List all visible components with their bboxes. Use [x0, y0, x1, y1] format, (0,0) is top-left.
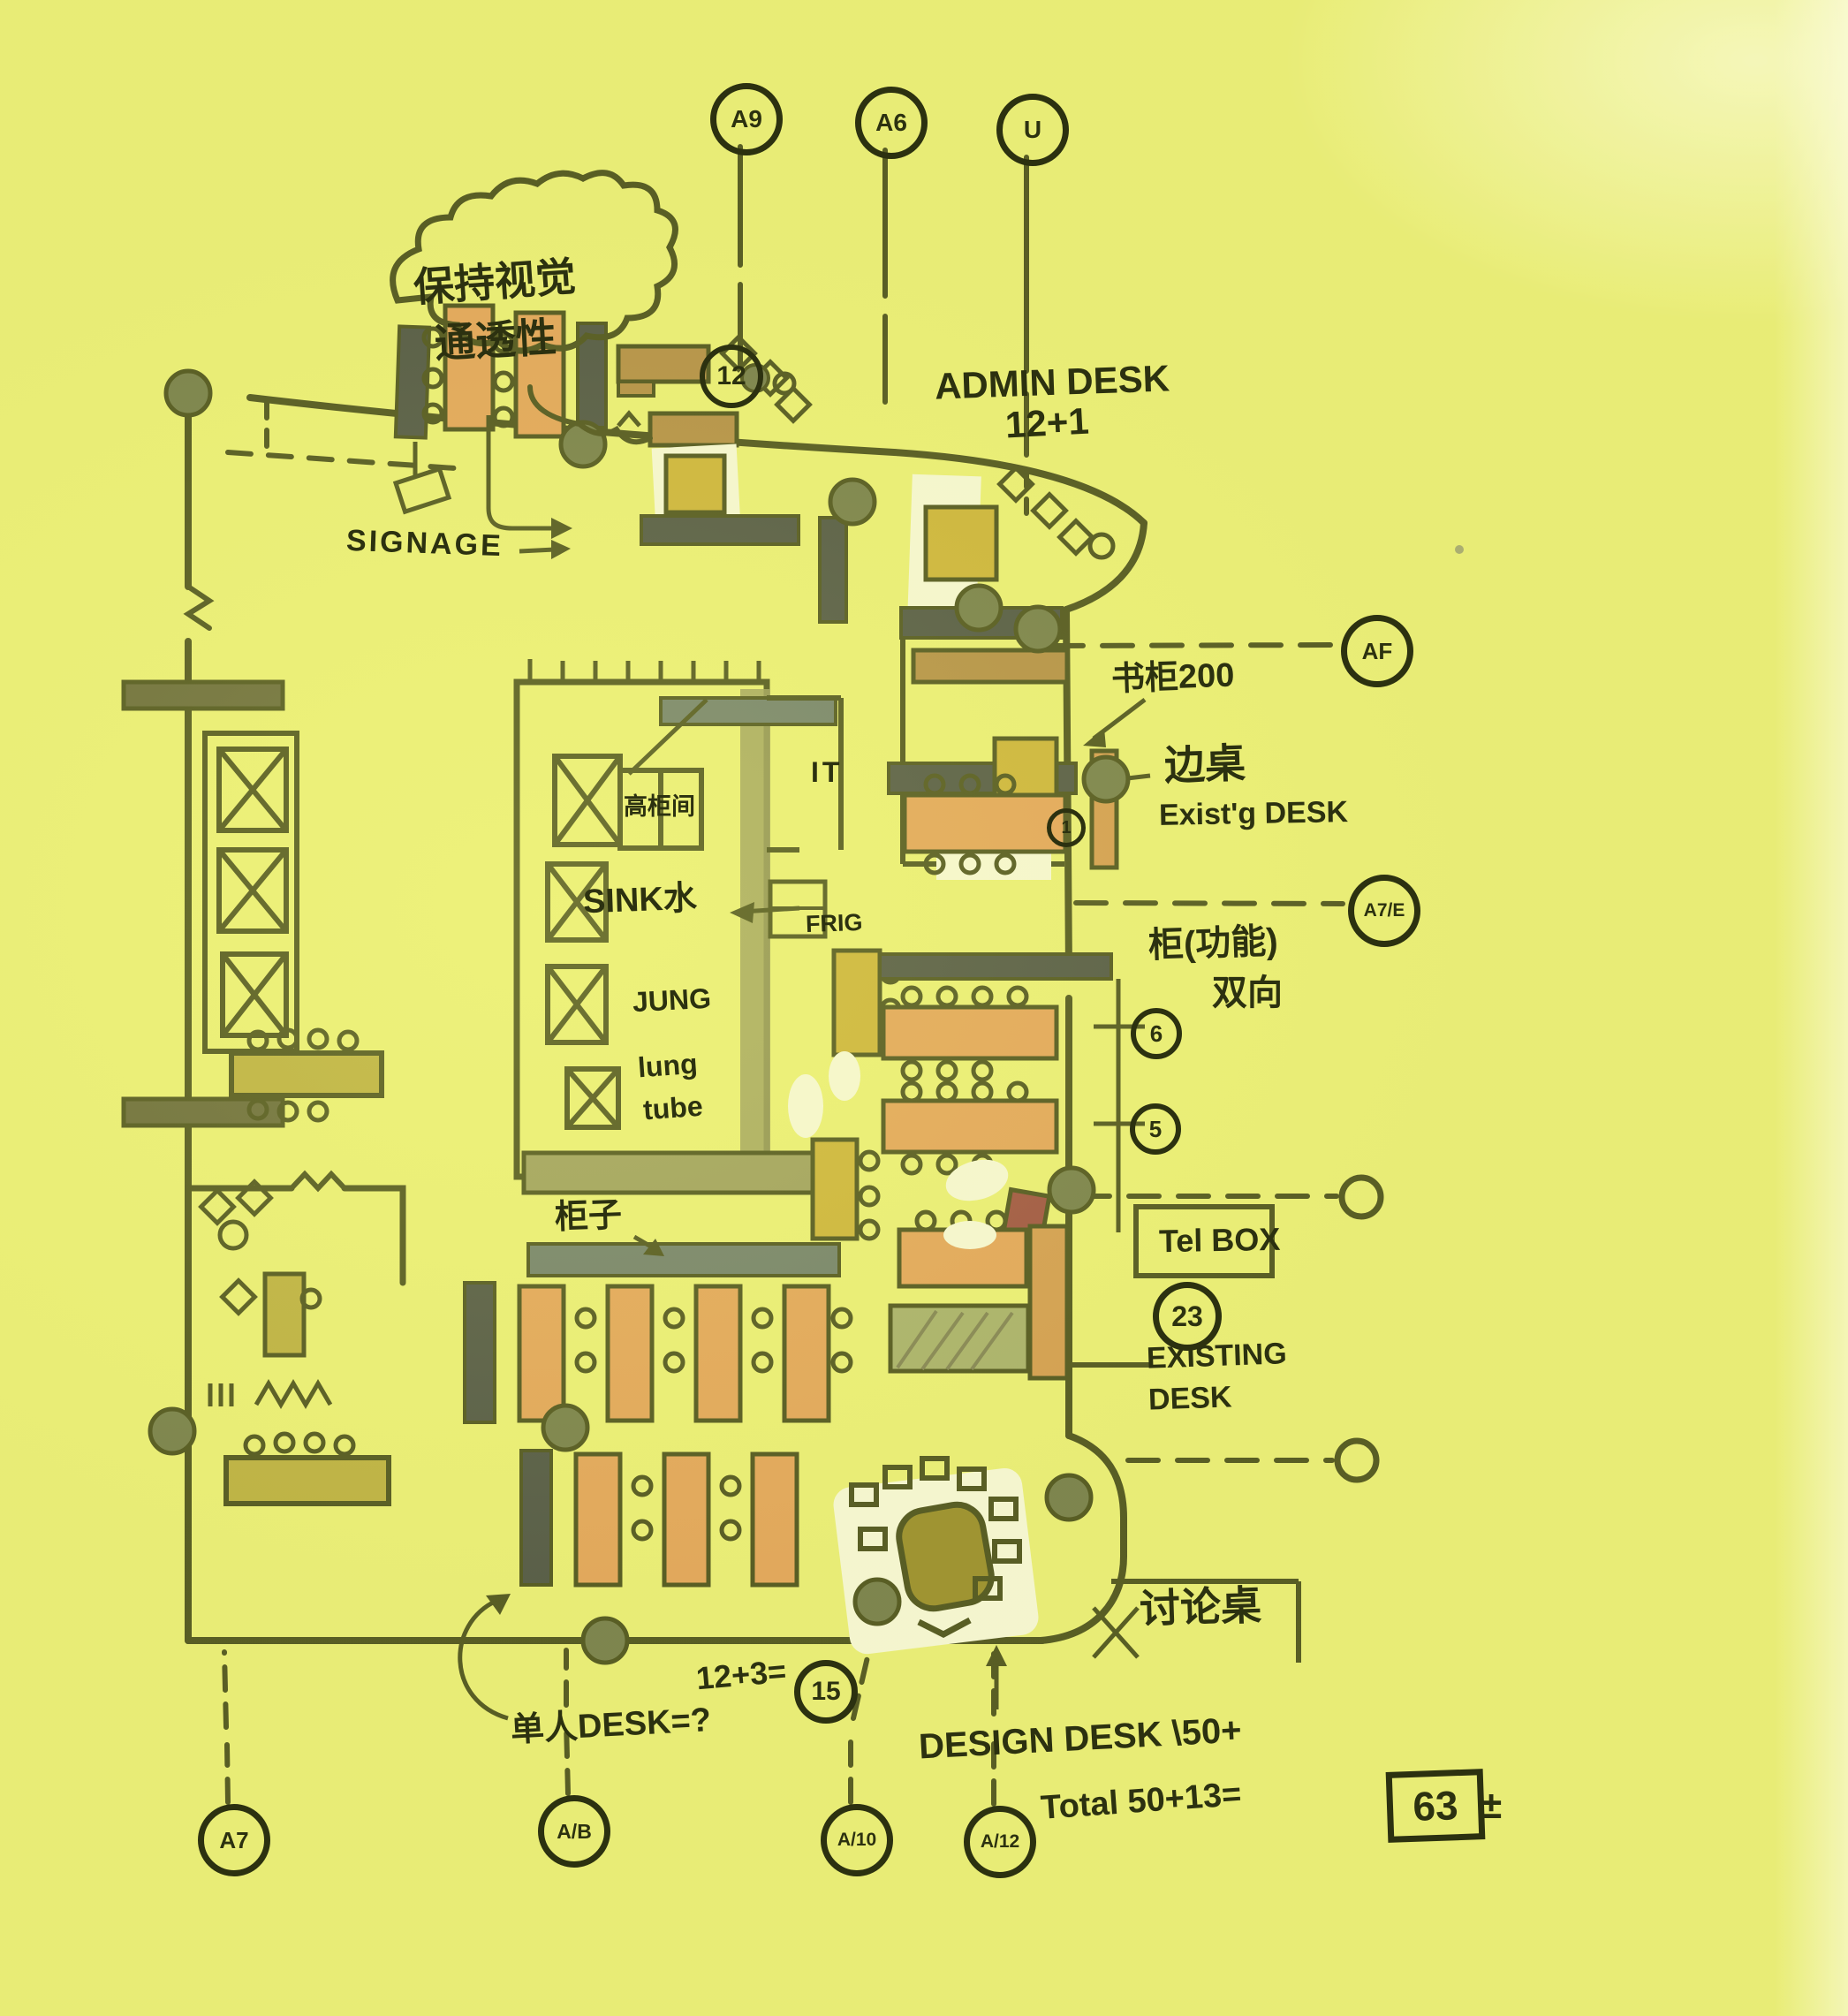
- tall-cabinet-label: 高柜间: [624, 795, 695, 819]
- meeting-room: [201, 1182, 389, 1504]
- bookcase-label: 书柜200: [1110, 659, 1235, 697]
- tel-box-label: Tel BOX: [1159, 1224, 1281, 1257]
- grid-marker-a12: A/12: [964, 1806, 1036, 1878]
- admin-desk-count: 12+1: [1004, 403, 1090, 444]
- side-table-label: 边桌: [1163, 742, 1246, 785]
- jung-label: JUNG: [632, 984, 711, 1017]
- cabinet-label: 柜子: [554, 1199, 622, 1235]
- grid-marker-u: U: [996, 94, 1069, 166]
- it-room-label: IT: [811, 758, 843, 786]
- circled-count-15: 15: [794, 1660, 858, 1724]
- plan-drawing: [0, 0, 1848, 2016]
- grid-marker-ab: A/B: [538, 1795, 610, 1868]
- circled-count-23: 23: [1153, 1282, 1222, 1351]
- discussion-room-label: 讨论桌: [1139, 1585, 1262, 1630]
- existing-desk-small-label: Exist'g DESK: [1159, 797, 1349, 830]
- grid-marker-a7: A7: [198, 1804, 270, 1876]
- floor-plan-sketch: A9 A6 U AF A7/E A7 A/B A/10 A/12 12 1 6 …: [0, 0, 1848, 2016]
- grid-marker-a7e: A7/E: [1348, 875, 1420, 947]
- grid-marker-af: AF: [1341, 615, 1413, 687]
- lung-tube-label-line2: tube: [642, 1092, 704, 1125]
- circled-count-1: 1: [1047, 808, 1086, 847]
- cloud-note-line1: 保持视觉: [413, 256, 578, 308]
- admin-desk-label: ADMIN DESK: [934, 360, 1170, 405]
- frig-label: FRIG: [806, 911, 863, 936]
- circled-count-12: 12: [700, 345, 763, 408]
- left-shaft-core: [205, 733, 297, 1051]
- circled-count-5: 5: [1130, 1103, 1181, 1155]
- bottom-desk-rows: [465, 1237, 851, 1585]
- signage-label: SIGNAGE: [345, 526, 504, 561]
- lung-tube-label-line1: lung: [637, 1050, 699, 1082]
- grid-marker-a6: A6: [855, 87, 928, 159]
- grid-marker-a9: A9: [710, 83, 783, 155]
- total-boxed-value: 63: [1386, 1769, 1486, 1843]
- cloud-note-line2: 通透性: [434, 316, 557, 363]
- existing-desk-label-line2: DESK: [1147, 1382, 1232, 1414]
- circled-count-6: 6: [1131, 1008, 1182, 1059]
- two-way-label: 双向: [1212, 975, 1283, 1011]
- desk-sum-15-label: 12+3=: [695, 1656, 788, 1695]
- grid-marker-a10: A/10: [821, 1804, 893, 1876]
- sink-label: SINK水: [582, 882, 697, 919]
- cabinet-function-label: 柜(功能): [1147, 923, 1278, 963]
